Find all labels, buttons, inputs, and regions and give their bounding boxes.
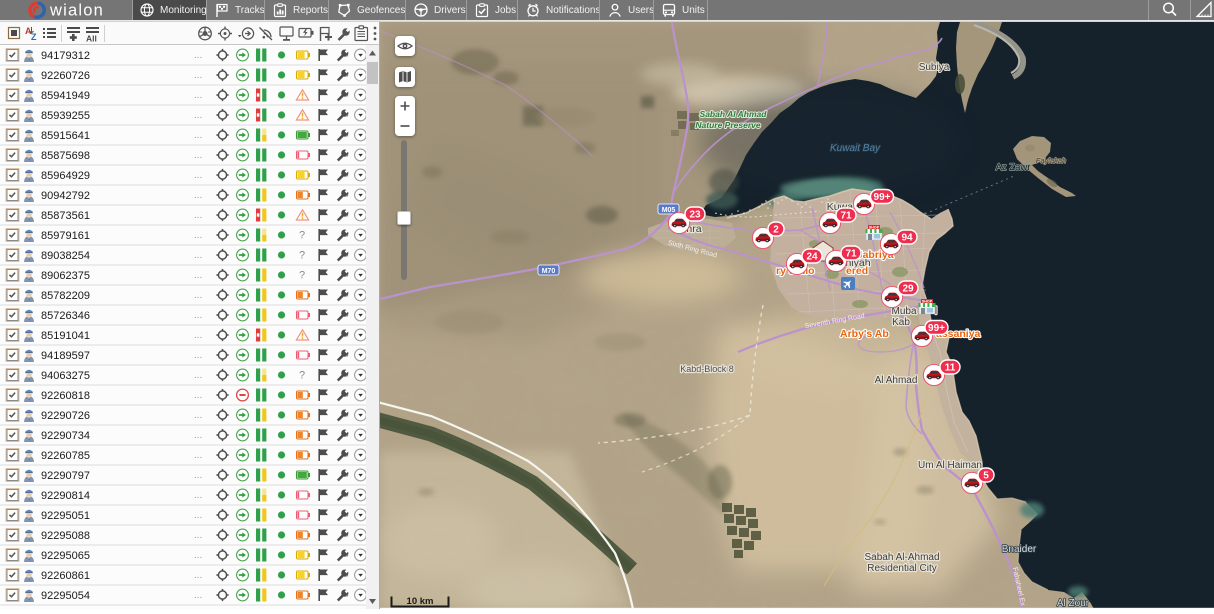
svg-text:...: ... <box>194 90 202 101</box>
svg-text:5: 5 <box>983 471 989 482</box>
svg-text:Muba: Muba <box>891 306 916 317</box>
svg-text:...: ... <box>194 590 202 601</box>
svg-text:...: ... <box>194 430 202 441</box>
svg-text:Subiya: Subiya <box>919 62 950 73</box>
svg-text:Residential City: Residential City <box>867 563 936 574</box>
svg-text:89038254: 89038254 <box>41 250 90 262</box>
svg-text:85979161: 85979161 <box>41 230 90 242</box>
svg-text:M05: M05 <box>662 207 676 214</box>
svg-text:94179312: 94179312 <box>41 50 90 62</box>
svg-text:92260861: 92260861 <box>41 570 90 582</box>
svg-text:...: ... <box>194 350 202 361</box>
svg-text:...: ... <box>194 530 202 541</box>
svg-text:Al Zour: Al Zour <box>1057 598 1090 609</box>
svg-text:...: ... <box>194 130 202 141</box>
svg-text:...: ... <box>194 210 202 221</box>
svg-text:99+: 99+ <box>874 192 891 203</box>
svg-text:...: ... <box>194 190 202 201</box>
svg-text:Sabah Al-Ahmad: Sabah Al-Ahmad <box>864 552 939 563</box>
svg-text:...: ... <box>194 50 202 61</box>
svg-text:Sabah Al Ahmad: Sabah Al Ahmad <box>700 109 768 119</box>
svg-text:92290814: 92290814 <box>41 490 90 502</box>
svg-text:29: 29 <box>902 284 914 295</box>
svg-text:Nature Preserve: Nature Preserve <box>695 120 760 130</box>
svg-text:...: ... <box>194 170 202 181</box>
svg-text:...: ... <box>194 450 202 461</box>
svg-text:92290797: 92290797 <box>41 470 90 482</box>
svg-text:10 km: 10 km <box>407 596 434 607</box>
svg-text:M70: M70 <box>542 268 556 275</box>
svg-text:Um Al Haiman: Um Al Haiman <box>918 460 982 471</box>
svg-text:89062375: 89062375 <box>41 270 90 282</box>
svg-text:92290726: 92290726 <box>41 410 90 422</box>
svg-text:Kab: Kab <box>892 317 910 328</box>
svg-text:...: ... <box>194 270 202 281</box>
svg-text:85782209: 85782209 <box>41 290 90 302</box>
svg-text:94063275: 94063275 <box>41 370 90 382</box>
svg-text:85964929: 85964929 <box>41 170 90 182</box>
svg-text:ered: ered <box>846 265 868 277</box>
svg-text:...: ... <box>194 250 202 261</box>
svg-text:...: ... <box>194 330 202 341</box>
svg-text:85726346: 85726346 <box>41 310 90 322</box>
svg-text:...: ... <box>194 70 202 81</box>
svg-text:wialon: wialon <box>49 2 104 20</box>
svg-text:71: 71 <box>845 249 857 260</box>
svg-text:92295054: 92295054 <box>41 590 90 602</box>
svg-text:92295051: 92295051 <box>41 510 90 522</box>
svg-text:...: ... <box>194 230 202 241</box>
svg-text:85873561: 85873561 <box>41 210 90 222</box>
svg-text:92290734: 92290734 <box>41 430 90 442</box>
svg-text:99+: 99+ <box>928 323 945 334</box>
svg-text:...: ... <box>194 570 202 581</box>
svg-text:85939255: 85939255 <box>41 110 90 122</box>
svg-text:...: ... <box>194 410 202 421</box>
svg-text:85191041: 85191041 <box>41 330 90 342</box>
svg-text:Al Ahmad: Al Ahmad <box>875 375 918 386</box>
svg-text:2: 2 <box>773 225 779 236</box>
svg-text:...: ... <box>194 290 202 301</box>
svg-text:...: ... <box>194 490 202 501</box>
svg-text:85915641: 85915641 <box>41 130 90 142</box>
svg-text:85875698: 85875698 <box>41 150 90 162</box>
svg-text:11: 11 <box>945 363 956 374</box>
svg-text:92295088: 92295088 <box>41 530 90 542</box>
svg-text:All: All <box>86 34 97 44</box>
svg-text:92295065: 92295065 <box>41 550 90 562</box>
svg-text:92260818: 92260818 <box>41 390 90 402</box>
svg-text:...: ... <box>194 310 202 321</box>
svg-text:...: ... <box>194 550 202 561</box>
svg-text:Kabd-Block 8: Kabd-Block 8 <box>680 364 734 374</box>
svg-text:...: ... <box>194 470 202 481</box>
svg-text:...: ... <box>194 390 202 401</box>
svg-text:Bnaider: Bnaider <box>1002 544 1037 555</box>
svg-text:...: ... <box>194 150 202 161</box>
svg-text:...: ... <box>194 110 202 121</box>
svg-text:71: 71 <box>840 211 852 222</box>
svg-text:94189597: 94189597 <box>41 350 90 362</box>
svg-text:92260785: 92260785 <box>41 450 90 462</box>
svg-text:Kuwait Bay: Kuwait Bay <box>830 143 881 154</box>
svg-text:94: 94 <box>901 233 913 244</box>
svg-text:...: ... <box>194 510 202 521</box>
svg-text:Arby's Ab: Arby's Ab <box>840 328 889 340</box>
svg-text:Az Zawr: Az Zawr <box>996 162 1031 173</box>
svg-text:...: ... <box>194 370 202 381</box>
svg-text:23: 23 <box>689 210 701 221</box>
svg-text:Faylakah: Faylakah <box>1036 156 1066 165</box>
svg-text:85941949: 85941949 <box>41 90 90 102</box>
svg-text:92260726: 92260726 <box>41 70 90 82</box>
svg-text:90942792: 90942792 <box>41 190 90 202</box>
svg-text:24: 24 <box>806 252 818 263</box>
